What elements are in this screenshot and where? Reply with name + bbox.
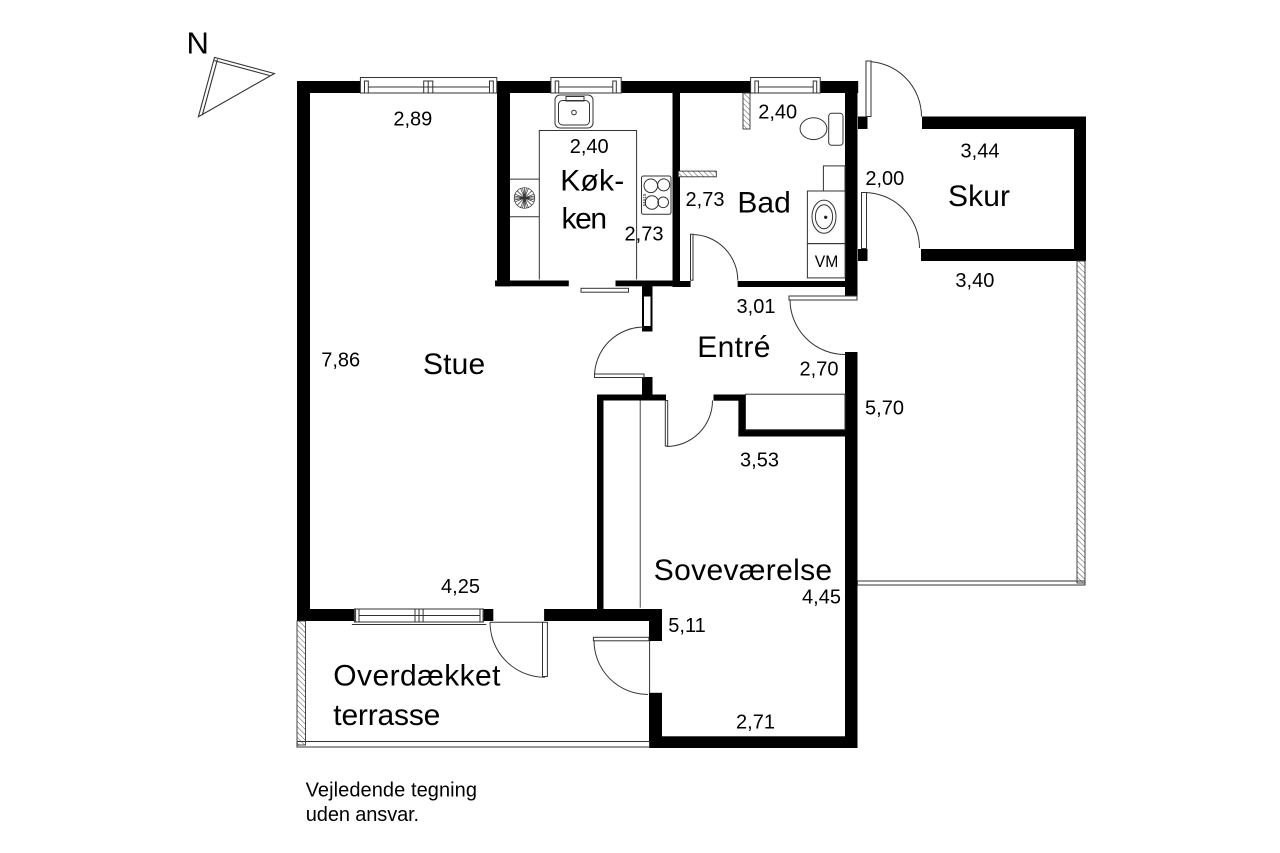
svg-text:2,40: 2,40 <box>758 102 797 124</box>
svg-text:Bad: Bad <box>737 187 790 220</box>
svg-text:4,25: 4,25 <box>441 576 480 598</box>
svg-text:2,00: 2,00 <box>865 168 904 190</box>
svg-text:Skur: Skur <box>948 180 1010 213</box>
svg-text:2,71: 2,71 <box>736 712 775 734</box>
svg-text:2,73: 2,73 <box>625 224 664 246</box>
svg-text:2,73: 2,73 <box>686 189 725 211</box>
svg-text:51515: 51515 <box>642 193 647 206</box>
svg-text:Entré: Entré <box>697 331 770 364</box>
svg-text:5,11: 5,11 <box>668 615 705 637</box>
svg-text:2,89: 2,89 <box>393 108 432 130</box>
svg-text:Stue: Stue <box>423 348 485 381</box>
svg-text:VM: VM <box>815 252 839 271</box>
svg-text:uden ansvar.: uden ansvar. <box>306 804 419 826</box>
svg-text:terrasse: terrasse <box>333 699 440 732</box>
svg-text:3,01: 3,01 <box>737 296 776 318</box>
svg-text:4,45: 4,45 <box>802 587 841 609</box>
svg-text:2,70: 2,70 <box>800 359 839 381</box>
svg-text:3,40: 3,40 <box>955 270 994 292</box>
svg-text:5,70: 5,70 <box>865 398 904 420</box>
svg-text:N: N <box>187 26 209 61</box>
svg-text:3,53: 3,53 <box>740 450 779 472</box>
svg-text:Overdækket: Overdækket <box>333 660 501 693</box>
svg-text:Soveværelse: Soveværelse <box>654 554 832 587</box>
svg-text:3,44: 3,44 <box>961 141 1000 163</box>
svg-text:7,86: 7,86 <box>321 350 360 372</box>
svg-text:Køk-: Køk- <box>560 165 624 198</box>
svg-text:2,40: 2,40 <box>570 136 609 158</box>
svg-text:Vejledende tegning: Vejledende tegning <box>306 780 477 802</box>
svg-text:ken: ken <box>562 203 608 236</box>
